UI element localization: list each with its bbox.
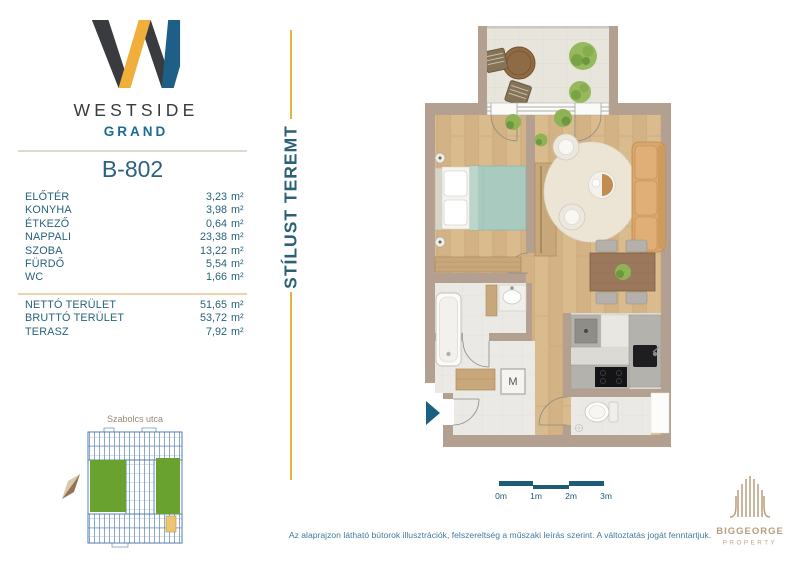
brand-wordmark: WESTSIDE <box>58 100 214 121</box>
total-label: TERASZ <box>25 326 189 338</box>
total-value: 51,65 <box>189 299 227 311</box>
room-area-value: 13,22 <box>189 245 227 257</box>
tagline-text: STÍLUST TEREMT <box>281 125 302 289</box>
bathtub <box>436 293 461 366</box>
washing-machine-label: M <box>508 376 517 388</box>
shaft-niche <box>651 393 669 433</box>
terrace-table <box>503 47 535 79</box>
scale-segment <box>569 481 604 486</box>
bath-shelf <box>486 285 497 316</box>
room-label: FÜRDŐ <box>25 258 189 270</box>
room-label: ELŐTÉR <box>25 191 189 203</box>
room-area-unit: m² <box>231 271 246 283</box>
table-row: NAPPALI 23,38 m² <box>25 231 246 244</box>
table-row: ELŐTÉR 3,23 m² <box>25 191 246 204</box>
kitchen-sink <box>633 345 657 367</box>
biggeorge-icon <box>730 476 770 517</box>
courtyard-green <box>90 460 126 512</box>
room-area-unit: m² <box>231 191 246 203</box>
disclaimer-text: Az alaprajzon látható bútorok illusztrác… <box>270 530 730 540</box>
room-area-value: 5,54 <box>189 258 227 270</box>
room-label: NAPPALI <box>25 231 189 243</box>
cooktop <box>595 367 627 387</box>
scale-segment <box>533 485 569 490</box>
room-label: SZOBA <box>25 245 189 257</box>
entrance-door-gap <box>442 399 454 425</box>
terrace <box>478 26 618 112</box>
coffee-table <box>589 172 616 199</box>
totals-divider <box>18 293 247 295</box>
scale-label: 2m <box>565 491 577 501</box>
site-map: Szabolcs utca <box>52 406 202 548</box>
total-unit: m² <box>231 312 246 324</box>
unit-code: B-802 <box>18 156 247 183</box>
total-unit: m² <box>231 326 246 338</box>
brochure-page: WESTSIDE GRAND B-802 ELŐTÉR 3,23 m² KONY… <box>0 0 800 565</box>
table-row: NETTÓ TERÜLET 51,65 m² <box>25 299 246 312</box>
room-area-value: 3,23 <box>189 191 227 203</box>
room-label: ÉTKEZŐ <box>25 218 189 230</box>
partner-division: PROPERTY <box>723 540 778 547</box>
scale-bar: 0m 1m 2m 3m <box>480 470 630 502</box>
room-label: KONYHA <box>25 204 189 216</box>
room-label: WC <box>25 271 189 283</box>
armchair <box>553 134 579 160</box>
tagline-line-top <box>290 30 292 119</box>
total-value: 7,92 <box>189 326 227 338</box>
room-area-value: 3,98 <box>189 204 227 216</box>
table-row: TERASZ 7,92 m² <box>25 326 246 339</box>
table-row: WC 1,66 m² <box>25 271 246 284</box>
room-area-unit: m² <box>231 218 246 230</box>
tagline-line-bottom <box>290 292 292 480</box>
total-label: NETTÓ TERÜLET <box>25 299 189 311</box>
room-area-value: 0,64 <box>189 218 227 230</box>
totals-table: NETTÓ TERÜLET 51,65 m² BRUTTÓ TERÜLET 53… <box>25 299 246 339</box>
room-area-value: 1,66 <box>189 271 227 283</box>
total-value: 53,72 <box>189 312 227 324</box>
unit-location-highlight <box>166 516 176 532</box>
room-area-value: 23,38 <box>189 231 227 243</box>
room-area-unit: m² <box>231 245 246 257</box>
total-label: BRUTTÓ TERÜLET <box>25 312 189 324</box>
table-row: BRUTTÓ TERÜLET 53,72 m² <box>25 312 246 325</box>
scale-label: 3m <box>600 491 612 501</box>
room-area-unit: m² <box>231 204 246 216</box>
room-area-unit: m² <box>231 231 246 243</box>
street-label: Szabolcs utca <box>107 414 163 424</box>
room-area-table: ELŐTÉR 3,23 m² KONYHA 3,98 m² ÉTKEZŐ 0,6… <box>25 191 246 285</box>
table-row: ÉTKEZŐ 0,64 m² <box>25 218 246 231</box>
table-row: SZOBA 13,22 m² <box>25 245 246 258</box>
scale-segment <box>499 481 533 486</box>
washbasin <box>499 285 526 311</box>
sofa <box>632 142 665 252</box>
armchair <box>559 204 585 230</box>
floor-plan: M <box>423 16 675 452</box>
table-row: KONYHA 3,98 m² <box>25 204 246 217</box>
scale-label: 0m <box>495 491 507 501</box>
scale-label: 1m <box>530 491 542 501</box>
washing-machine: M <box>501 369 525 394</box>
top-divider <box>18 150 247 152</box>
brand-submark: GRAND <box>58 124 214 139</box>
westside-grand-logo: WESTSIDE GRAND <box>58 20 214 139</box>
entrance-arrow-icon <box>426 401 440 425</box>
entry-cabinet <box>456 369 495 390</box>
total-unit: m² <box>231 299 246 311</box>
courtyard-green <box>156 458 180 514</box>
terrace-glass-wall <box>487 103 609 115</box>
w-logo-icon <box>90 20 182 88</box>
bedroom-bench <box>435 257 521 272</box>
room-area-unit: m² <box>231 258 246 270</box>
table-row: FÜRDŐ 5,54 m² <box>25 258 246 271</box>
compass-arrow-icon <box>62 474 80 499</box>
